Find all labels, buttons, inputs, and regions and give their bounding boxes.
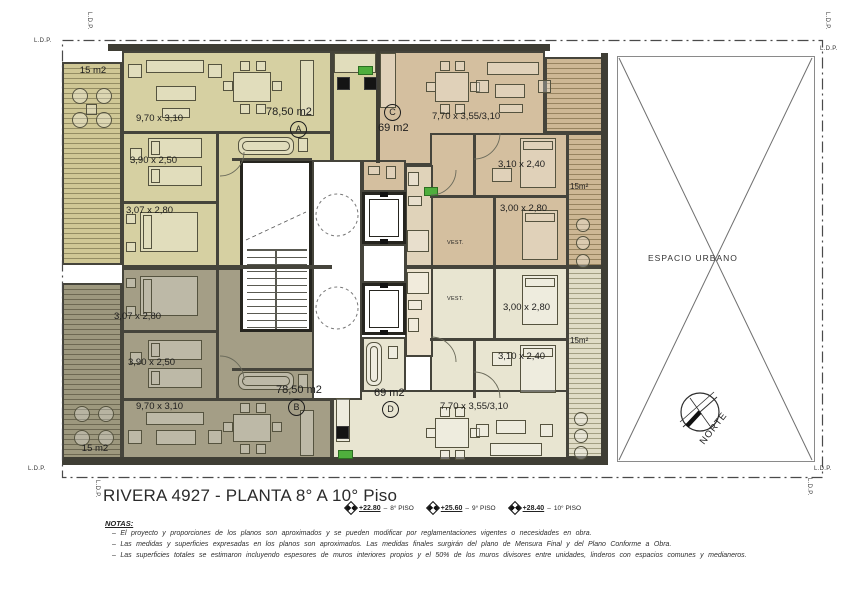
kitchen-counter: [380, 53, 396, 108]
sofa: [146, 412, 204, 425]
property-line-label: L.D.P.: [806, 478, 812, 496]
floor-plan-sheet: 15 m2 9,70 x 3,10 78,50 m2 A 3,90 x 2,50…: [0, 0, 842, 595]
stairwell: [240, 160, 312, 332]
armchair: [208, 430, 222, 444]
wall-a-bed: [122, 201, 218, 204]
balcony-chair: [574, 429, 588, 443]
unit-c-bedroom2-dim: 3,00 x 2,80: [500, 204, 547, 214]
property-line-label: L.D.P.: [28, 466, 46, 472]
unit-a-balcony: [62, 62, 122, 265]
coffee-table: [156, 430, 196, 445]
dining-chair: [223, 422, 233, 432]
toilet: [298, 138, 308, 152]
property-line-label: L.D.P.: [814, 466, 832, 472]
stove: [336, 426, 349, 439]
open-space-label: ESPACIO URBANO: [648, 253, 738, 263]
unit-c-area: 69 m2: [378, 123, 409, 133]
balcony-chair: [576, 218, 590, 232]
wall-c-bed1: [473, 133, 476, 197]
double-bed: [140, 276, 198, 316]
armchair: [540, 424, 553, 437]
unit-a-id: A: [290, 121, 307, 138]
unit-d-bedroom1-dim: 3,10 x 2,40: [498, 352, 545, 362]
dining-chair: [440, 61, 450, 71]
stair-treads: [247, 251, 307, 329]
dining-chair: [240, 104, 250, 114]
elevator-door-mark: [380, 283, 388, 288]
wall-a-bath: [232, 158, 312, 161]
benchmark-icon: [344, 501, 358, 515]
nightstand: [126, 242, 136, 252]
level-marker-9: +25.60 – 9° PISO: [428, 503, 496, 513]
dining-table: [233, 414, 271, 442]
property-line-label: L.D.P.: [86, 12, 92, 30]
stair-landing: [247, 249, 307, 251]
balcony-chair: [74, 406, 90, 422]
dining-table: [435, 72, 469, 102]
wall-cd-divider: [430, 265, 568, 268]
balcony-chair: [574, 446, 588, 460]
level-elevation: +25.60: [441, 505, 463, 512]
wall-ab-divider: [122, 265, 332, 269]
dining-chair: [256, 104, 266, 114]
shower: [407, 272, 429, 294]
double-bed: [140, 212, 198, 252]
shower: [407, 230, 429, 252]
unit-d-balcony-area: 15m²: [570, 336, 588, 346]
armchair: [128, 64, 142, 78]
kitchen-counter: [300, 410, 314, 456]
north-label: NORTE: [698, 410, 730, 447]
unit-b-living-dim: 9,70 x 3,10: [136, 402, 183, 412]
sink: [368, 166, 380, 175]
wall-d-bed1: [473, 340, 476, 398]
level-floor: 10° PISO: [554, 505, 581, 512]
armchair: [538, 80, 551, 93]
unit-c-living-dim: 7,70 x 3,55/3,10: [432, 112, 500, 122]
elevator-1: [362, 192, 406, 244]
sofa: [487, 62, 539, 75]
balcony-table: [86, 104, 97, 115]
level-elevation: +22.80: [359, 505, 381, 512]
unit-a-area: 78,50 m2: [266, 107, 312, 117]
unit-d-id: D: [382, 401, 399, 418]
unit-b-balcony-area: 15 m2: [70, 444, 120, 454]
dining-table: [435, 418, 469, 448]
balcony-chair: [96, 88, 112, 104]
benchmark-icon: [426, 501, 440, 515]
level-marker-10: +28.40 – 10° PISO: [510, 503, 581, 513]
dining-table: [233, 72, 271, 102]
unit-c-bedroom1-dim: 3,10 x 2,40: [498, 160, 545, 170]
dining-chair: [223, 81, 233, 91]
dining-chair: [426, 428, 436, 438]
dining-chair: [455, 61, 465, 71]
dining-chair: [455, 450, 465, 460]
wall-c-bed2: [493, 197, 496, 267]
balcony-chair: [98, 406, 114, 422]
wall-top: [108, 44, 550, 51]
elevator-door-mark: [380, 330, 388, 335]
dining-chair: [426, 82, 436, 92]
bed: [148, 368, 202, 388]
elevator-door-mark: [380, 192, 388, 197]
bathtub: [238, 137, 294, 155]
unit-d-area: 69 m2: [374, 388, 405, 398]
dining-chair: [240, 61, 250, 71]
bed: [522, 275, 558, 325]
unit-b-area: 78,50 m2: [276, 385, 322, 395]
sink: [408, 300, 422, 310]
level-dash: –: [465, 505, 469, 512]
unit-b-bedroom1-dim: 3,90 x 2,50: [128, 358, 175, 368]
sink: [408, 196, 422, 206]
sofa: [490, 443, 542, 456]
dining-chair: [272, 81, 282, 91]
balcony-chair: [576, 236, 590, 250]
unit-c-toilet: [362, 160, 406, 192]
bed: [148, 166, 202, 186]
unit-c-vest-label: VEST.: [447, 238, 464, 248]
balcony-chair: [574, 412, 588, 426]
armchair: [128, 430, 142, 444]
armchair: [476, 424, 489, 437]
property-line-label: L.D.P.: [824, 12, 830, 30]
wall-a-corridor: [216, 133, 219, 268]
dining-chair: [440, 450, 450, 460]
coffee-table: [495, 84, 525, 98]
wall-b-bath: [232, 368, 312, 371]
desk: [492, 168, 512, 182]
unit-d-bedroom2-dim: 3,00 x 2,80: [503, 303, 550, 313]
wall-b-corridor: [216, 268, 219, 400]
unit-a-living-dim: 9,70 x 3,10: [136, 114, 183, 124]
balcony-chair: [576, 254, 590, 268]
level-floor: 9° PISO: [472, 505, 496, 512]
toilet: [386, 166, 396, 179]
unit-a-balcony-area: 15 m2: [68, 66, 118, 76]
elevator-lobby: [362, 244, 406, 283]
level-floor: 8° PISO: [390, 505, 414, 512]
unit-c-id: C: [384, 104, 401, 121]
toilet: [408, 172, 419, 186]
level-marker-8: +22.80 – 8° PISO: [346, 503, 414, 513]
bed: [522, 210, 558, 260]
wall-c-beds: [430, 195, 568, 198]
balcony-chair: [96, 112, 112, 128]
wall-b-bed: [122, 330, 218, 333]
level-elevation: +28.40: [523, 505, 545, 512]
coffee-table: [496, 420, 526, 434]
elevator-2: [362, 283, 406, 335]
benchmark-icon: [508, 501, 522, 515]
planter: [424, 187, 438, 196]
ottoman: [499, 104, 523, 113]
unit-d-vest-label: VEST.: [447, 294, 464, 304]
stove: [364, 77, 377, 90]
unit-a-bedroom2-dim: 3,07 x 2,80: [126, 206, 173, 216]
level-dash: –: [547, 505, 551, 512]
dining-chair: [256, 403, 266, 413]
note-line-2: – Las medidas y superficies expresadas e…: [112, 541, 802, 548]
planter: [338, 450, 353, 459]
unit-c-balcony-top: [545, 57, 603, 133]
elevator-door-mark: [380, 239, 388, 244]
nightstand: [126, 278, 136, 288]
unit-b-balcony: [62, 283, 122, 459]
notes-heading: NOTAS:: [105, 519, 133, 528]
wall-d-bed2: [493, 267, 496, 340]
note-line-1: – El proyecto y proporciones de los plan…: [112, 530, 802, 537]
wall-d-beds: [430, 338, 568, 341]
unit-a-bedroom1-dim: 3,90 x 2,50: [130, 156, 177, 166]
bathtub: [366, 342, 382, 386]
coffee-table: [156, 86, 196, 101]
dining-chair: [240, 444, 250, 454]
toilet: [388, 346, 398, 359]
property-line-label: L.D.P.: [820, 46, 838, 52]
unit-b-id: B: [288, 399, 305, 416]
dining-chair: [272, 422, 282, 432]
wall-right: [601, 53, 608, 459]
level-markers: +22.80 – 8° PISO +25.60 – 9° PISO +28.40…: [346, 503, 581, 513]
dining-chair: [240, 403, 250, 413]
armchair: [476, 80, 489, 93]
sofa: [146, 60, 204, 73]
elevator-hall: [312, 160, 362, 400]
property-line-label: L.D.P.: [94, 480, 100, 498]
property-line-label: L.D.P.: [34, 38, 52, 44]
note-line-3: – Las superficies totales se estimaron i…: [112, 552, 802, 559]
unit-c-balcony-area: 15m²: [570, 182, 588, 192]
wall-bottom: [62, 457, 608, 465]
unit-b-bedroom2-dim: 3,07 x 2,80: [114, 312, 161, 322]
toilet: [408, 318, 419, 332]
dining-chair: [256, 61, 266, 71]
dining-chair: [256, 444, 266, 454]
stove: [337, 77, 350, 90]
stair-divider: [275, 251, 277, 329]
armchair: [208, 64, 222, 78]
level-dash: –: [384, 505, 388, 512]
unit-d-living-dim: 7,70 x 3,55/3,10: [440, 402, 508, 412]
planter: [358, 66, 373, 75]
balcony-chair: [72, 88, 88, 104]
